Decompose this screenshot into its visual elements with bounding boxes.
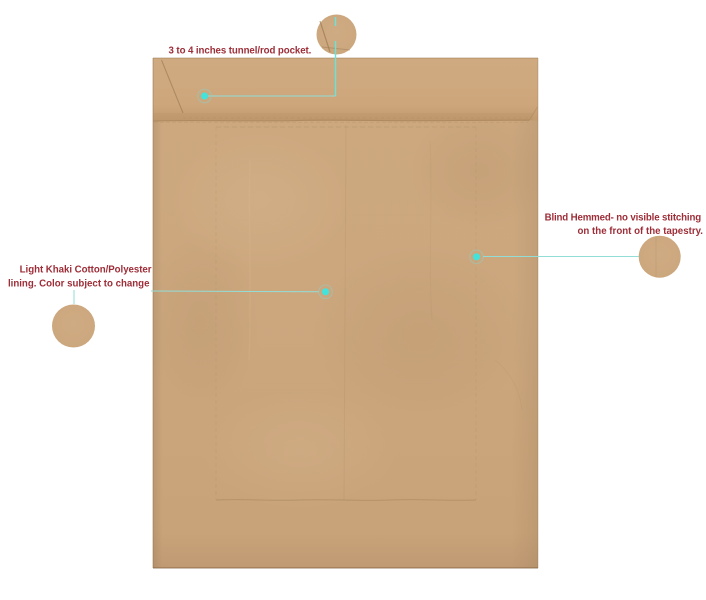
svg-text:3 to 4 inches tunnel/rod pocke: 3 to 4 inches tunnel/rod pocket. <box>169 46 312 57</box>
svg-text:Blind Hemmed- no visible stitc: Blind Hemmed- no visible stitching <box>545 213 702 224</box>
svg-text:on the front of the tapestry.: on the front of the tapestry. <box>577 226 703 237</box>
svg-text:Light Khaki Cotton/Polyester: Light Khaki Cotton/Polyester <box>20 265 152 276</box>
svg-text:lining. Color subject to chang: lining. Color subject to change <box>8 279 150 290</box>
